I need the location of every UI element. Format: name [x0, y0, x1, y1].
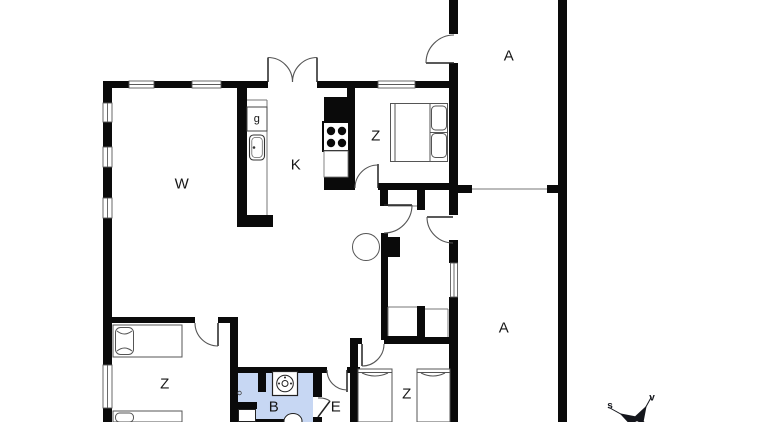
bedroom-south-door [362, 344, 384, 366]
vanity-icon [239, 410, 256, 422]
bed-single-west-1 [113, 325, 182, 357]
room-label-bedroom-west: Z [160, 376, 170, 393]
window-top-3 [378, 81, 415, 88]
window-left-2 [103, 147, 112, 167]
sink-icon [250, 135, 265, 160]
walls [103, 0, 567, 422]
french-door-north [268, 58, 317, 83]
compass-rose-icon [608, 397, 654, 422]
room-label-terrace-south: A [499, 320, 510, 337]
hall-door [384, 205, 412, 233]
room-label-kitchen: K [291, 157, 302, 174]
porch-terrace-door [426, 35, 454, 63]
stove-icon [323, 122, 349, 151]
entry-door [327, 370, 347, 392]
bed-double-north [391, 104, 448, 162]
bathroom-door [318, 398, 330, 417]
bed-single-south-2 [417, 369, 450, 422]
compass-south-label: s [607, 401, 613, 412]
floorplan-canvas: W K g Z A A Z B E Z s v [0, 0, 768, 422]
room-label-entry: E [331, 399, 342, 416]
window-left-1 [103, 103, 112, 122]
window-top-2 [192, 81, 221, 88]
window-right-1 [451, 263, 458, 297]
window-left-4 [103, 365, 112, 408]
room-label-bathroom: B [269, 399, 280, 416]
bedroom-north-door [355, 164, 378, 188]
room-label-living-room: W [175, 176, 190, 193]
bedroom-west-door [195, 323, 218, 346]
window-left-3 [103, 198, 112, 218]
window-top-1 [129, 81, 154, 88]
bed-single-west-2 [113, 411, 182, 422]
hall-terrace-door [427, 217, 453, 243]
floorplan-drawing [0, 0, 768, 422]
washing-machine-icon [273, 372, 298, 396]
bed-single-south-1 [358, 369, 392, 422]
kitchen-counter-south [324, 151, 348, 177]
wood-stove-icon [353, 234, 380, 261]
room-label-bedroom-south: Z [402, 386, 412, 403]
room-label-terrace-north: A [504, 48, 515, 65]
room-label-bedroom-north: Z [371, 128, 381, 145]
room-label-cabinet: g [254, 113, 261, 125]
compass-west-label: v [649, 393, 655, 404]
